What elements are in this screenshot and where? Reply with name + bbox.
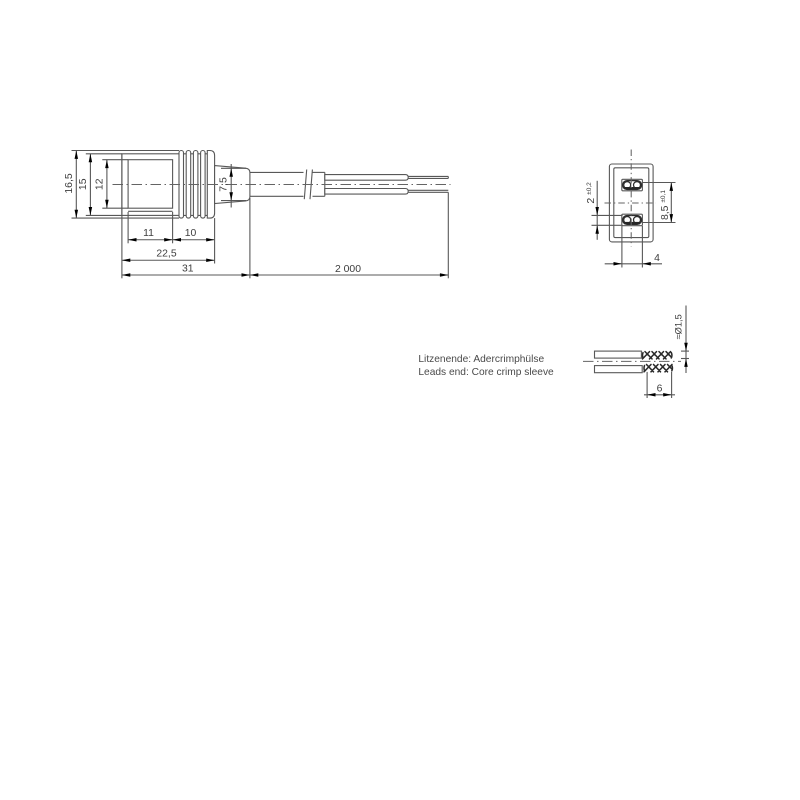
svg-text:7,5: 7,5 bbox=[218, 177, 229, 192]
svg-text:4: 4 bbox=[654, 253, 660, 264]
svg-text:≈Ø1,5: ≈Ø1,5 bbox=[674, 314, 684, 339]
svg-text:12: 12 bbox=[95, 178, 106, 190]
svg-text:6: 6 bbox=[657, 384, 663, 395]
svg-text:Litzenende: Adercrimphülse: Litzenende: Adercrimphülse bbox=[418, 354, 544, 365]
svg-text:22,5: 22,5 bbox=[156, 249, 176, 260]
svg-text:10: 10 bbox=[185, 228, 197, 239]
svg-text:11: 11 bbox=[143, 228, 154, 239]
svg-text:16,5: 16,5 bbox=[64, 173, 75, 193]
svg-text:Leads end: Core crimp sleeve: Leads end: Core crimp sleeve bbox=[418, 367, 554, 378]
svg-text:15: 15 bbox=[78, 178, 89, 190]
svg-text:2 000: 2 000 bbox=[335, 264, 361, 275]
svg-text:31: 31 bbox=[182, 264, 194, 275]
